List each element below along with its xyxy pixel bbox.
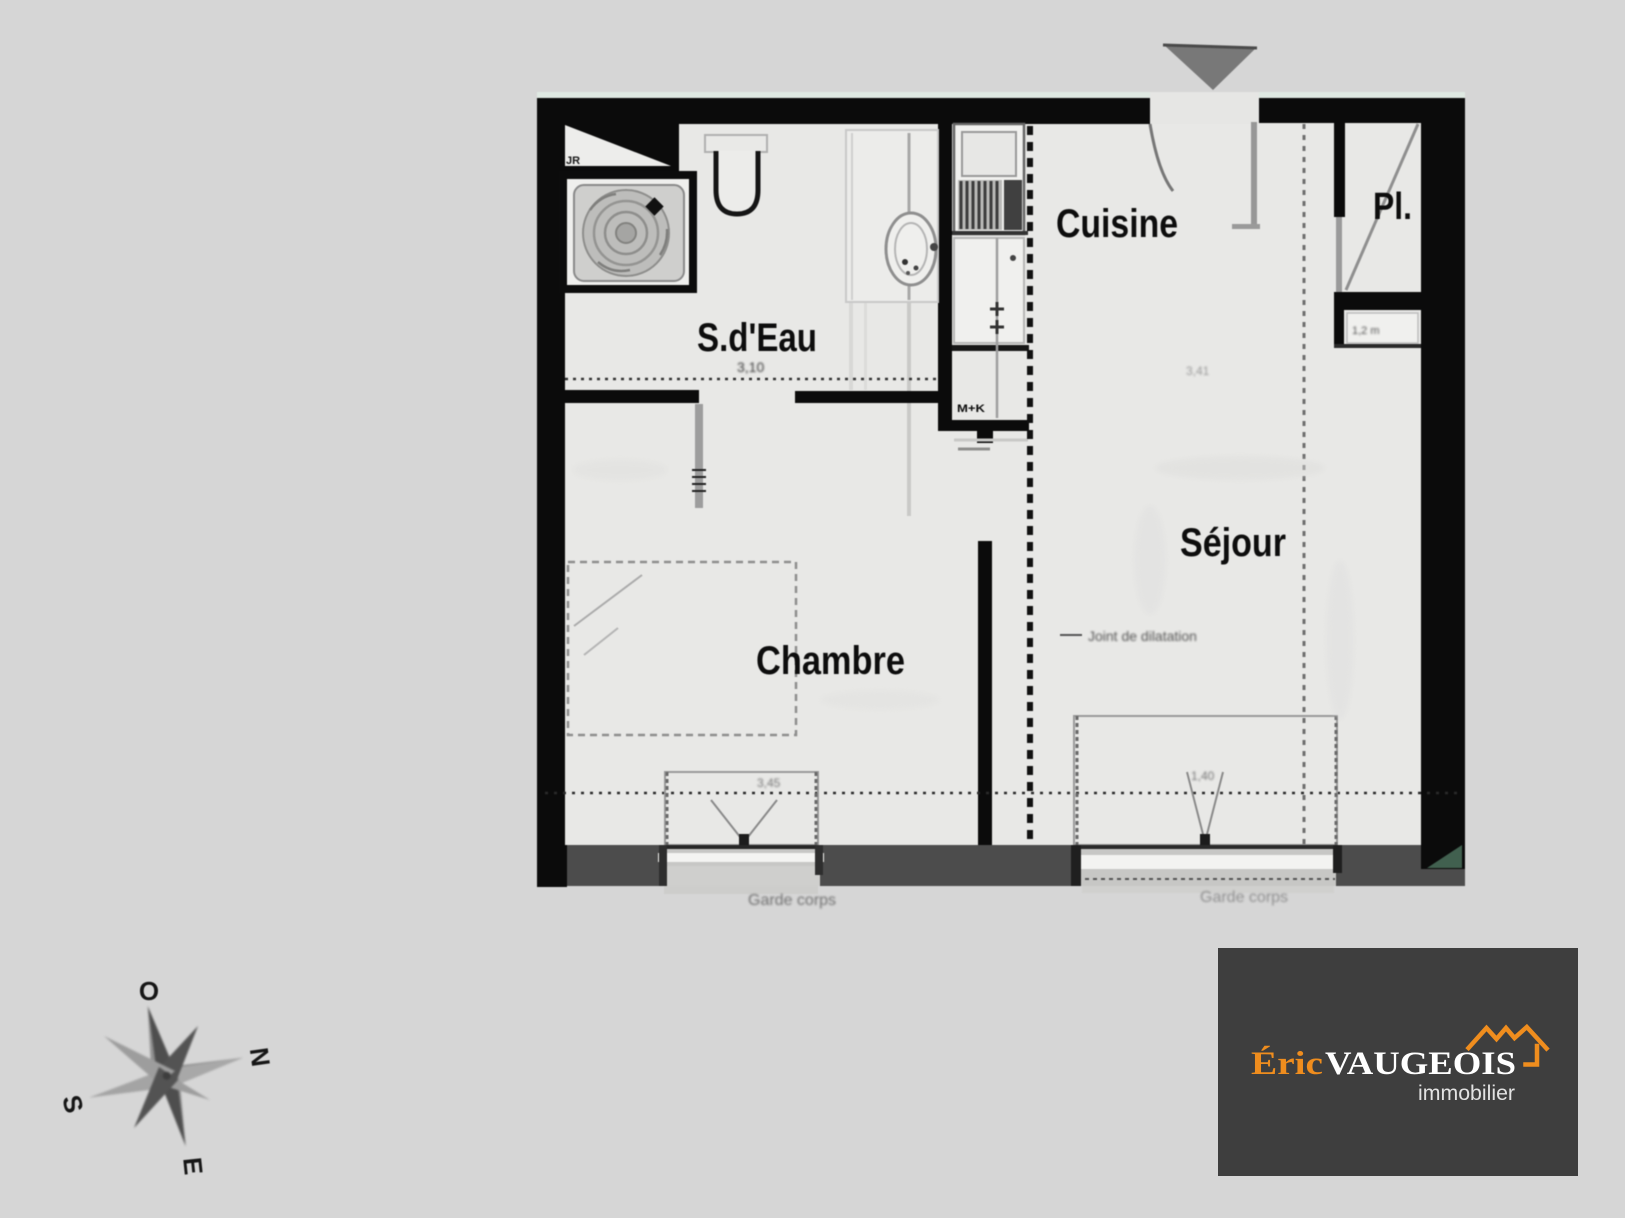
svg-text:M+K: M+K (957, 403, 985, 415)
svg-text:Chambre: Chambre (756, 639, 905, 683)
svg-text:O: O (139, 976, 159, 1006)
svg-text:Séjour: Séjour (1180, 521, 1286, 565)
svg-text:1,2 m: 1,2 m (1352, 325, 1380, 337)
svg-text:1,40: 1,40 (1191, 769, 1215, 783)
svg-text:Joint de dilatation: Joint de dilatation (1088, 628, 1197, 644)
svg-text:S: S (56, 1092, 89, 1116)
svg-text:N: N (244, 1046, 276, 1069)
svg-text:S.d'Eau: S.d'Eau (697, 316, 817, 360)
svg-text:Garde corps: Garde corps (748, 892, 836, 909)
svg-text:3,41: 3,41 (1186, 364, 1210, 378)
svg-text:Pl.: Pl. (1373, 186, 1412, 228)
svg-text:immobilier: immobilier (1418, 1082, 1515, 1105)
svg-text:3,10: 3,10 (737, 359, 764, 375)
svg-text:JR: JR (566, 155, 580, 167)
svg-text:Cuisine: Cuisine (1056, 202, 1178, 246)
svg-text:VAUGEOIS: VAUGEOIS (1325, 1046, 1516, 1082)
svg-text:3,45: 3,45 (757, 776, 781, 790)
svg-text:Éric: Éric (1251, 1045, 1323, 1082)
svg-text:E: E (177, 1156, 209, 1176)
svg-text:Garde corps: Garde corps (1200, 889, 1288, 906)
